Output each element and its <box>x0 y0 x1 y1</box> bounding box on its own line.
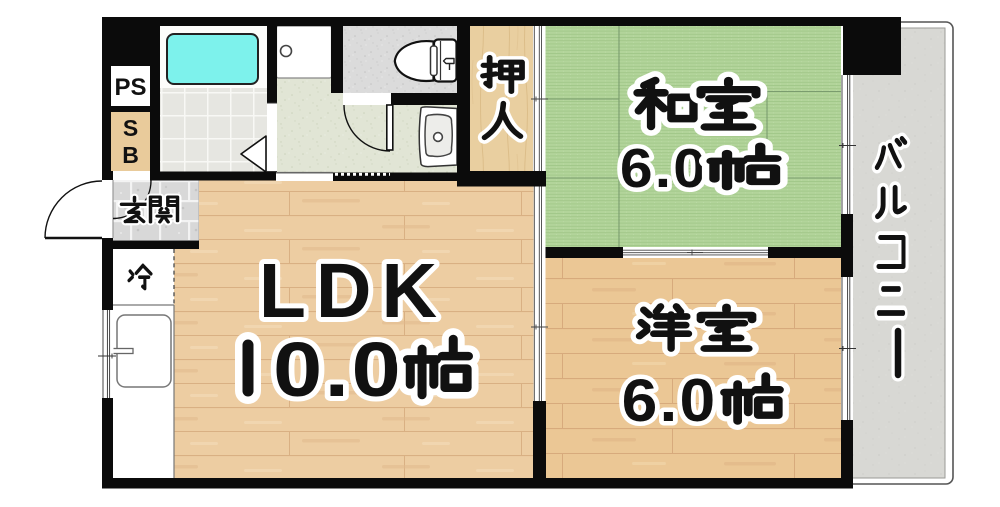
svg-text:PS: PS <box>114 74 146 101</box>
svg-text:S: S <box>123 115 138 141</box>
svg-text:6.0: 6.0 <box>620 138 708 200</box>
svg-text:0.0: 0.0 <box>273 326 403 412</box>
svg-text:6.0: 6.0 <box>622 368 718 435</box>
svg-text:LDK: LDK <box>259 248 447 334</box>
svg-text:B: B <box>122 142 139 168</box>
